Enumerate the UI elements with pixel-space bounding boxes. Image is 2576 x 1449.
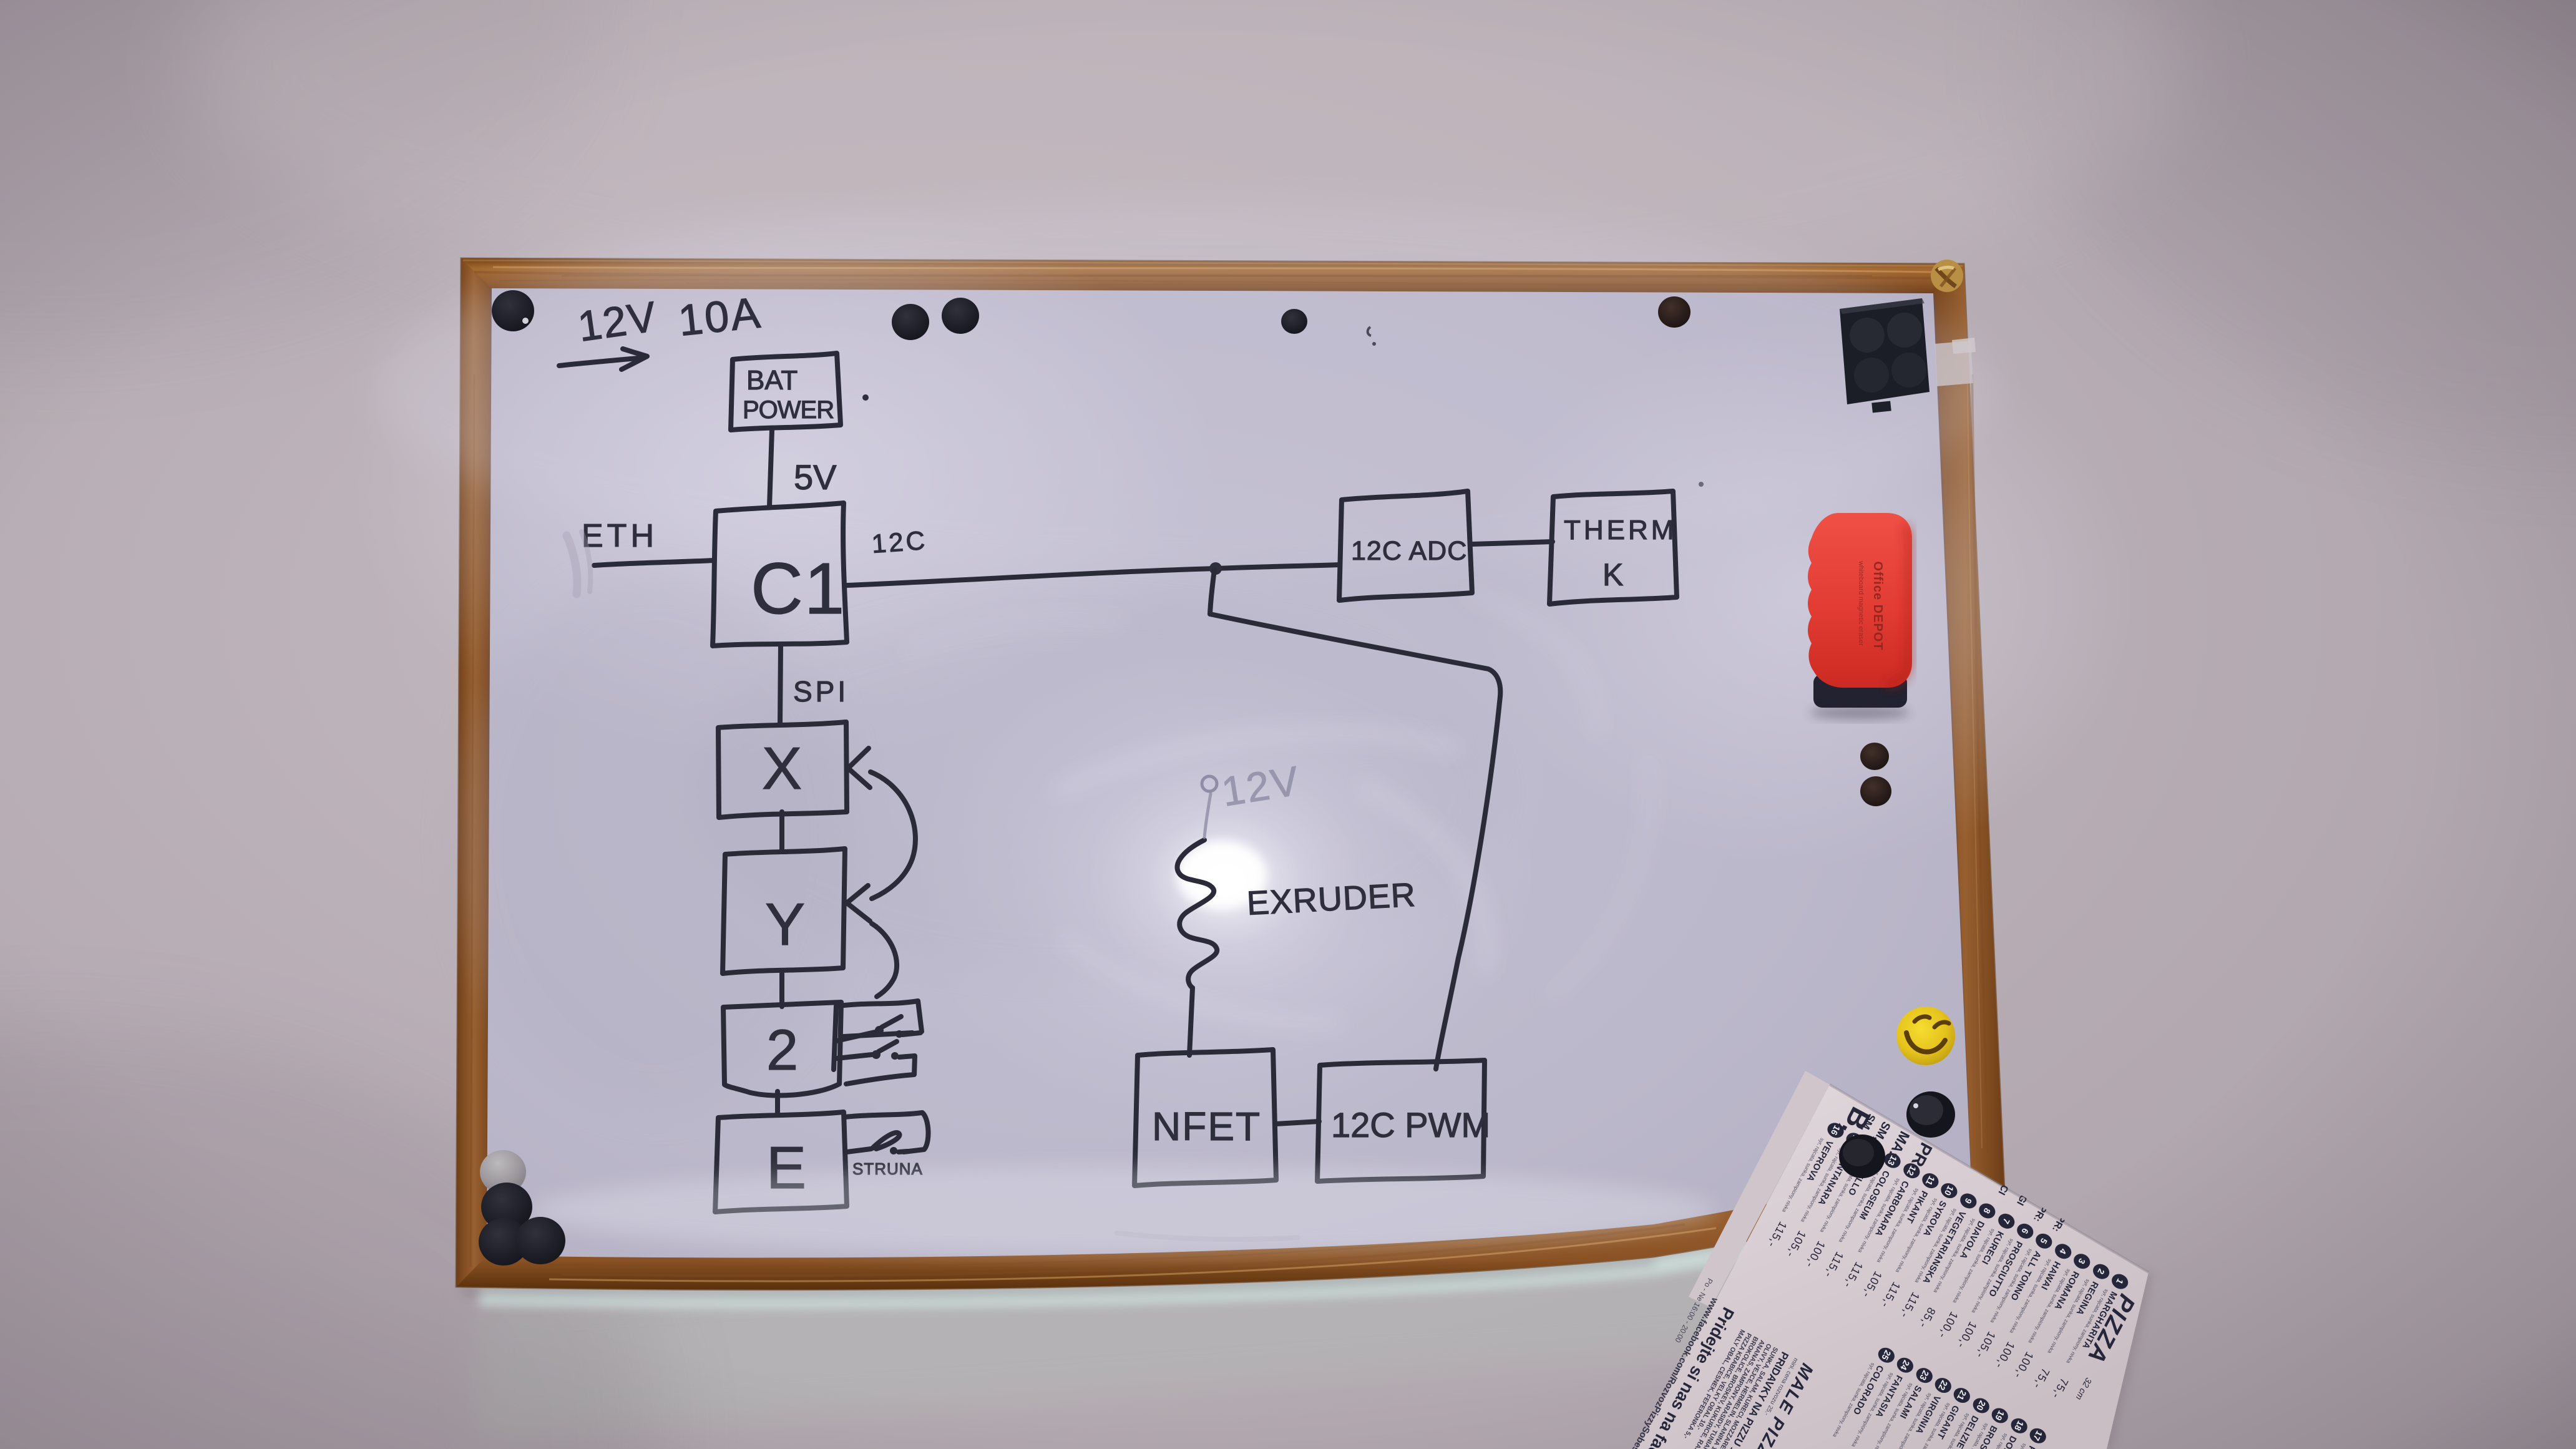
svg-text:NFET: NFET [1152, 1104, 1261, 1149]
svg-text:C1: C1 [751, 548, 846, 629]
svg-text:Y: Y [765, 891, 805, 958]
svg-text:POWER: POWER [743, 396, 834, 424]
svg-text:5V: 5V [794, 457, 837, 497]
svg-text:X: X [762, 735, 802, 802]
svg-text:BAT: BAT [746, 365, 798, 396]
svg-text:THERM: THERM [1564, 515, 1677, 545]
svg-text:12C: 12C [871, 525, 928, 559]
svg-text:12C ADC: 12C ADC [1351, 536, 1467, 566]
svg-text:10A: 10A [676, 288, 764, 345]
svg-text:whiteboard magnetic eraser: whiteboard magnetic eraser [1857, 560, 1865, 646]
svg-text:K: K [1603, 557, 1623, 592]
svg-text:ETH: ETH [582, 518, 658, 554]
svg-text:2: 2 [766, 1018, 798, 1082]
svg-text:Office DEPOT: Office DEPOT [1871, 561, 1885, 650]
svg-text:12C PWM: 12C PWM [1331, 1105, 1490, 1144]
svg-text:SPI: SPI [793, 675, 849, 708]
